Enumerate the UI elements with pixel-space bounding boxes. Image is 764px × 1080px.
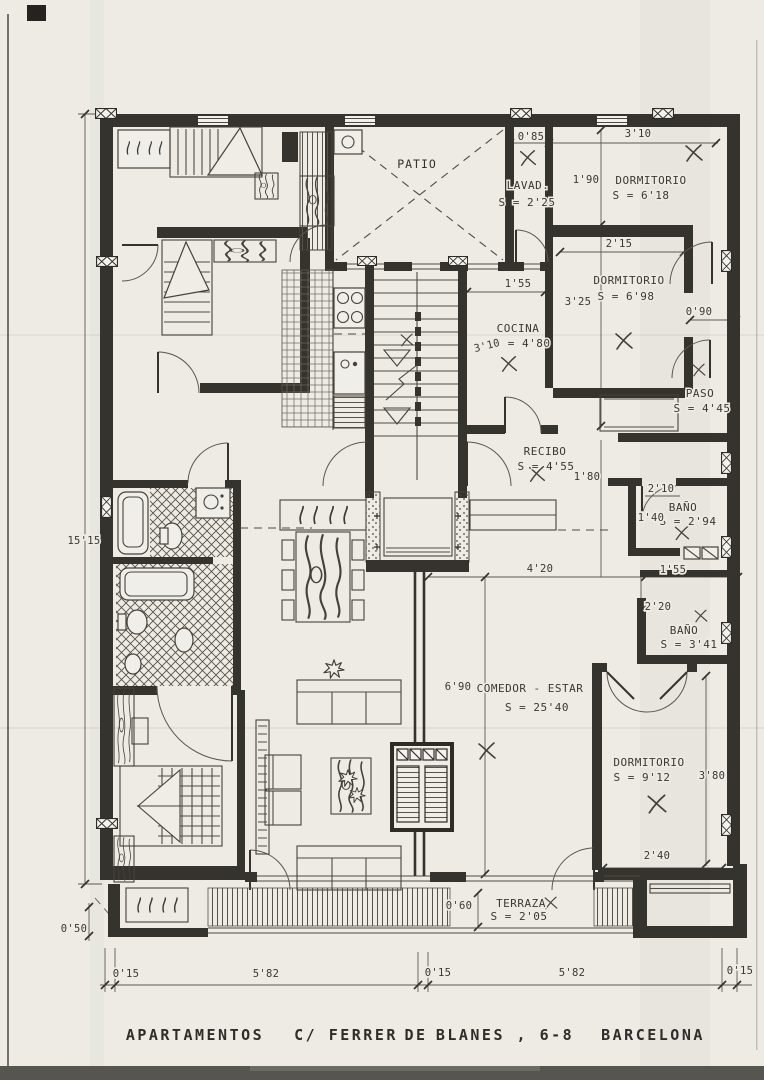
room-label-dormitorio-a: DORMITORIO [615, 174, 686, 187]
dim-lavad-width: 0'85 [518, 131, 545, 143]
dim-dorm-a-width: 3'10 [625, 128, 652, 140]
toilet [127, 610, 147, 634]
room-area-dormitorio-a: S = 6'18 [613, 189, 670, 202]
outer-wall-right [727, 114, 740, 866]
dim-dorm-c-width: 2'40 [644, 850, 671, 862]
bidet-small [125, 654, 141, 674]
dim-comedor-width: 4'20 [527, 563, 554, 575]
room-label-terraza: TERRAZA [496, 897, 546, 910]
caption-city: BARCELONA [601, 1026, 705, 1044]
bedroom-divider-wall [157, 227, 307, 238]
room-label-cocina: COCINA [497, 322, 540, 335]
bano-a-west-wall [628, 486, 636, 556]
outer-wall-bottom-left [100, 866, 245, 880]
bano-b-north-wall [640, 570, 740, 577]
dim-balcony-depth: 0'50 [61, 923, 88, 935]
bano-a-north-wall-a [608, 478, 642, 486]
room-label-comedor: COMEDOR - ESTAR [477, 682, 584, 695]
dormitorio-divider-wall [553, 225, 693, 237]
kitchen-sink-counter [334, 352, 365, 394]
bidet [175, 628, 193, 652]
scanned-floor-plan-page: PATIO LAVAD. S = 2'25 DORMITORIO S = 6'1… [0, 0, 764, 1080]
fireplace-unit [392, 744, 452, 830]
toilet-tank [160, 528, 168, 544]
kitchen-dark-unit [282, 132, 298, 162]
room-label-recibo: RECIBO [524, 445, 567, 458]
dorm-c-west-wall [592, 672, 602, 870]
room-area-dormitorio-b: S = 6'98 [598, 290, 655, 303]
dormitorio-b-south-wall [553, 388, 685, 398]
dim-dorm-b-width: 2'15 [606, 238, 633, 250]
dorm-c-north-wall-a [592, 663, 607, 672]
room-label-dormitorio-c: DORMITORIO [613, 756, 684, 769]
caption-street-number: BLANES , 6-8 [436, 1026, 574, 1044]
title-block: APARTAMENTOS C/ FERRER DE BLANES , 6-8 B… [126, 1026, 705, 1044]
dim-dorm-a-depth: 1'90 [573, 174, 600, 186]
bath-divider-wall [113, 557, 213, 564]
terrace-deck-left [208, 888, 450, 926]
dim-plot-left-wall: 0'15 [113, 968, 140, 980]
dim-cocina-width: 1'55 [505, 278, 532, 290]
room-label-bano-b: BAÑO [670, 624, 699, 637]
elevator-shaft-wall-right [455, 492, 469, 562]
stairwell-wall-right [458, 263, 467, 498]
dim-bano-a-bottom: 1'55 [660, 564, 687, 576]
dim-plot-left-span: 5'82 [253, 968, 280, 980]
elevator-sill [366, 560, 469, 572]
dim-recibo-opening: 1'80 [574, 471, 601, 483]
bathrooms-left [116, 488, 233, 686]
room-area-paso: S = 4'45 [674, 402, 731, 415]
dim-bano-a-left: 1'40 [638, 512, 665, 524]
closet [118, 130, 170, 168]
hall-north-wall [618, 433, 740, 442]
room-label-lavadero: LAVAD. [507, 179, 550, 192]
scan-corner-mark [27, 5, 46, 21]
cocina-wall-right [545, 267, 553, 388]
elevator-shaft-wall-left [366, 492, 380, 562]
dim-facade-left-total: 15'15 [67, 535, 100, 547]
cocina-south-wall-a [458, 425, 505, 434]
bath-east-wall [233, 480, 241, 690]
kitchen-tile-floor [282, 270, 333, 427]
kitchen-appliance [334, 396, 365, 428]
room-label-patio: PATIO [397, 157, 437, 171]
room-area-cocina: S = 4'80 [494, 337, 551, 350]
outer-wall-bottom-right [598, 868, 740, 880]
room-label-dormitorio-b: DORMITORIO [593, 274, 664, 287]
scan-left-edge-line [7, 14, 9, 1072]
dim-terraza-depth: 0'60 [446, 900, 473, 912]
bano-a-north-wall-b [676, 478, 740, 486]
room-area-terraza: S = 2'05 [491, 910, 548, 923]
caption-project: APARTAMENTOS [126, 1026, 264, 1044]
laundry-sink [334, 130, 362, 154]
bedroom3-east-wall [237, 690, 245, 868]
dim-bano-b-depth: 2'20 [645, 601, 672, 613]
caption-street: C/ FERRER [294, 1026, 398, 1044]
paso-wall-upper [684, 237, 693, 293]
floor-plan-drawing: PATIO LAVAD. S = 2'25 DORMITORIO S = 6'1… [0, 0, 764, 1080]
dim-dorm-c-depth: 3'80 [699, 770, 726, 782]
dim-plot-mid-wall: 0'15 [425, 967, 452, 979]
dim-plot-right-span: 5'82 [559, 967, 586, 979]
room-area-recibo: S = 4'55 [518, 460, 575, 473]
room-area-comedor: S = 25'40 [505, 701, 569, 714]
room-area-bano-a: S = 2'94 [660, 515, 717, 528]
room-area-dormitorio-c: S = 9'12 [614, 771, 671, 784]
dim-comedor-depth: 6'90 [445, 681, 472, 693]
room-area-bano-b: S = 3'41 [661, 638, 718, 651]
room-label-paso: PASO [686, 387, 715, 400]
dim-bano-a-width: 2'10 [648, 483, 675, 495]
cocina-south-wall-b [541, 425, 558, 434]
room-area-lavadero: S = 2'25 [499, 196, 556, 209]
bano-a-south-wall [628, 548, 680, 556]
outer-wall-top [100, 114, 740, 127]
scan-right-edge-line [756, 40, 758, 1050]
dorm-c-north-wall-b [687, 663, 697, 672]
caption-connector: DE [404, 1026, 427, 1044]
dim-paso-width: 0'90 [686, 306, 713, 318]
bano-b-south-wall [637, 655, 740, 664]
washbasin [196, 488, 230, 518]
scanner-streak [640, 0, 710, 1066]
dim-plot-right-wall: 0'15 [727, 965, 754, 977]
dim-dorm-b-depth: 3'25 [565, 296, 592, 308]
room-label-bano-a: BAÑO [669, 501, 698, 514]
bedroom3-north-wall-a [113, 686, 157, 695]
toilet-tank [118, 614, 126, 630]
bath-north-wall [113, 480, 188, 488]
